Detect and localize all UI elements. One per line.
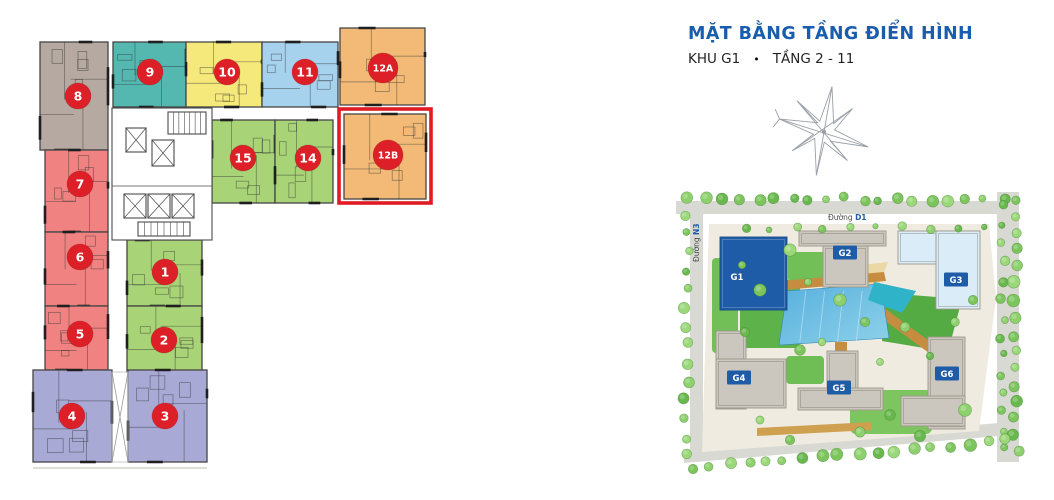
unit-badge-6: 6	[67, 244, 93, 270]
svg-text:1: 1	[161, 265, 170, 280]
header: MẶT BẰNG TẦNG ĐIỂN HÌNH KHU G1 • TẦNG 2 …	[688, 24, 973, 67]
page-title: MẶT BẰNG TẦNG ĐIỂN HÌNH	[688, 24, 973, 44]
unit-badge-8: 8	[65, 83, 91, 109]
svg-text:5: 5	[76, 327, 85, 342]
svg-text:7: 7	[76, 177, 85, 192]
svg-text:12A: 12A	[373, 63, 394, 74]
svg-text:6: 6	[76, 250, 85, 265]
unit-badge-5: 5	[67, 321, 93, 347]
subtitle-floors: TẦNG 2 - 11	[773, 51, 855, 67]
unit-badge-4: 4	[59, 403, 85, 429]
road-label-d1: Đường D1	[828, 213, 867, 222]
page: 89101112A151412B7651243 MẶT BẰNG TẦNG ĐI…	[0, 0, 1054, 500]
subtitle-block: KHU G1	[688, 51, 740, 67]
floor-plan-diagram: 89101112A151412B7651243	[0, 0, 460, 500]
building-label-G5: G5	[833, 384, 846, 394]
unit-badge-10: 10	[214, 59, 240, 85]
building-label-G1: G1	[731, 273, 744, 283]
svg-text:15: 15	[234, 151, 251, 166]
page-subtitle: KHU G1 • TẦNG 2 - 11	[688, 51, 973, 67]
building-label-G2: G2	[839, 249, 852, 259]
svg-text:2: 2	[160, 333, 169, 348]
compass-icon	[766, 84, 880, 190]
unit-badge-14: 14	[295, 145, 321, 171]
svg-text:4: 4	[68, 409, 77, 424]
building-G1: G1	[720, 237, 787, 310]
units	[33, 28, 426, 462]
unit-badge-3: 3	[152, 403, 178, 429]
road-label-n3: Đường N3	[692, 223, 701, 262]
unit-badge-15: 15	[230, 145, 256, 171]
bullet-separator: •	[753, 53, 760, 66]
unit-badge-12A: 12A	[368, 53, 398, 83]
building-label-G4: G4	[733, 374, 746, 384]
stair-gap	[112, 372, 128, 462]
site-plan-map: G1G2G3G4G5G6Đường D1Đường N3	[654, 180, 1054, 490]
svg-text:12B: 12B	[378, 150, 398, 161]
svg-text:10: 10	[218, 65, 236, 80]
unit-badge-2: 2	[151, 327, 177, 353]
svg-text:9: 9	[146, 65, 155, 80]
svg-text:8: 8	[74, 89, 83, 104]
building-label-G6: G6	[941, 370, 954, 380]
unit-badge-12B: 12B	[373, 140, 403, 170]
unit-badge-7: 7	[67, 171, 93, 197]
unit-badge-9: 9	[137, 59, 163, 85]
svg-text:14: 14	[299, 151, 317, 166]
core-elevators-stairs	[112, 108, 212, 240]
unit-badge-11: 11	[292, 59, 318, 85]
unit-badge-1: 1	[152, 259, 178, 285]
svg-text:11: 11	[296, 65, 313, 80]
svg-text:3: 3	[161, 409, 170, 424]
building-label-G3: G3	[950, 276, 963, 286]
